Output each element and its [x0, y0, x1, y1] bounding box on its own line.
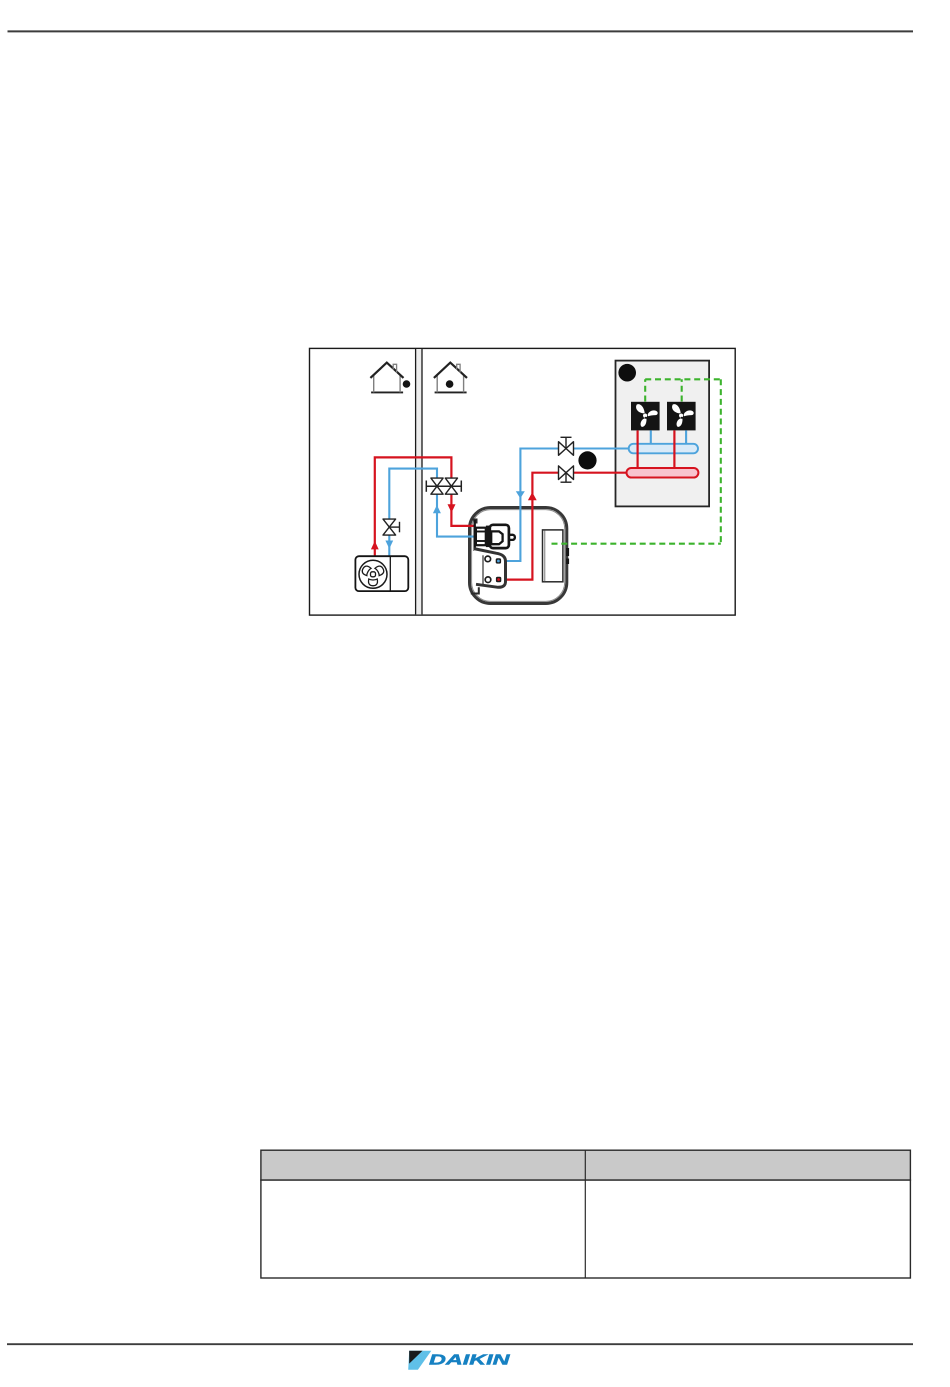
svg-text:DAIKIN: DAIKIN — [429, 1352, 511, 1368]
